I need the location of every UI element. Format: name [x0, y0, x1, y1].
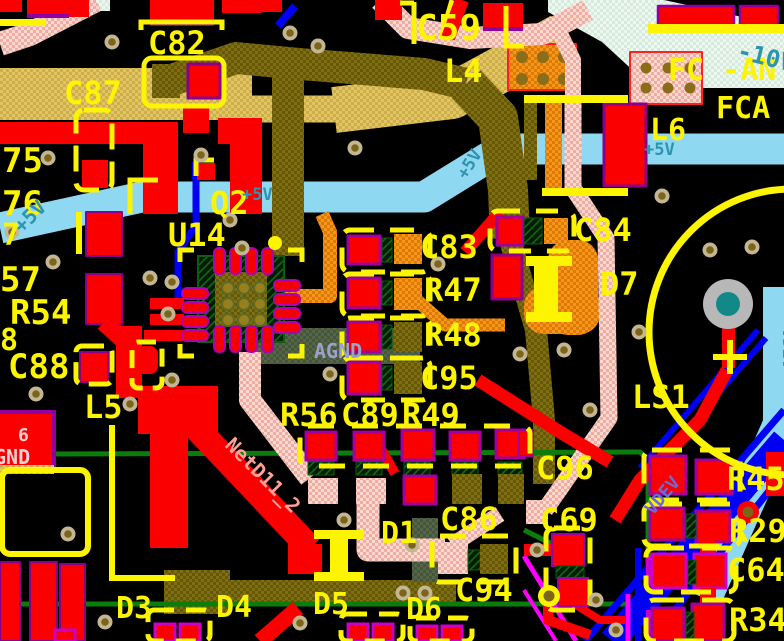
- designator-r29: R29: [729, 512, 784, 550]
- designator-c96: C96: [536, 449, 594, 487]
- designator-d4: D4: [216, 590, 252, 625]
- component-u14-qfn[interactable]: [182, 248, 300, 352]
- designator-c83: C83: [420, 228, 478, 266]
- designator-d1: D1: [381, 516, 417, 551]
- designator-c59: C59: [416, 8, 481, 49]
- designator-r45: R45: [727, 460, 784, 498]
- net-label-vdev-right: VDEV: [778, 328, 784, 369]
- net-label-gnd: GND: [0, 445, 30, 469]
- designator-r54: R54: [10, 293, 71, 333]
- yellow-ring-via: [538, 585, 560, 607]
- designator-c94: C94: [455, 571, 513, 609]
- designator-c64: C64: [727, 551, 784, 589]
- pcb-viewport[interactable]: 6 GND: [0, 0, 784, 641]
- designator-d7: D7: [600, 265, 639, 303]
- designator-r47: R47: [424, 271, 482, 309]
- pad-number: 6: [18, 425, 29, 446]
- designator-c82: C82: [148, 24, 206, 62]
- designator-c86: C86: [440, 500, 498, 538]
- net-label-fca: FCA: [716, 91, 770, 126]
- designator-l5: L5: [84, 388, 123, 426]
- thermal-vias[interactable]: [222, 282, 266, 326]
- designator-r56: R56: [280, 396, 338, 434]
- designator-c69: C69: [540, 501, 598, 539]
- designator-l4: L4: [444, 52, 483, 90]
- designator-d6: D6: [406, 592, 442, 627]
- designator-c95: C95: [420, 359, 478, 397]
- designator-r48: R48: [424, 316, 482, 354]
- net-label-5v-mid: +5V: [242, 185, 273, 205]
- designator-75: 75: [2, 141, 43, 181]
- designator-d5: D5: [313, 587, 349, 622]
- net-label-agnd: AGND: [314, 339, 362, 363]
- component-c84[interactable]: [497, 217, 568, 245]
- net-label-5v-right: +5V: [644, 140, 675, 160]
- designator-c84: C84: [574, 211, 632, 249]
- designator-d3: D3: [116, 591, 152, 626]
- designator-r49: R49: [402, 396, 460, 434]
- designator-r34: R34: [729, 601, 784, 639]
- yellow-test-dot: [268, 236, 282, 250]
- designator-ls1: LS1: [632, 378, 690, 416]
- ls1-mount-pad[interactable]: [703, 279, 753, 329]
- designator-c87: C87: [64, 74, 122, 112]
- designator-c89: C89: [341, 396, 399, 434]
- designator-c88: C88: [8, 347, 69, 387]
- gnd-connector-pad[interactable]: 6 GND: [0, 410, 56, 474]
- pcb-layout-canvas[interactable]: 6 GND: [0, 0, 784, 641]
